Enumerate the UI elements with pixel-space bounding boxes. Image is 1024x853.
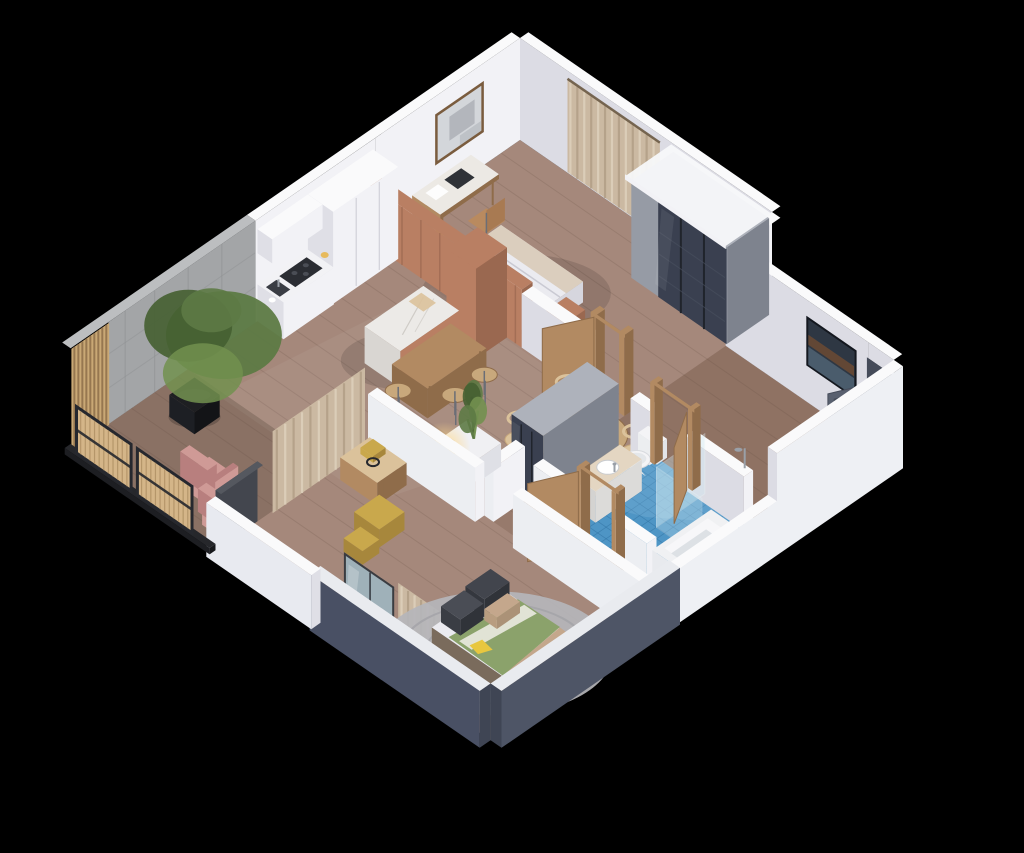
floorplan-render: 3D isometric cutaway rendering of a one-… — [0, 0, 1024, 853]
floorplan-stage: 3D isometric cutaway rendering of a one-… — [0, 0, 1024, 853]
